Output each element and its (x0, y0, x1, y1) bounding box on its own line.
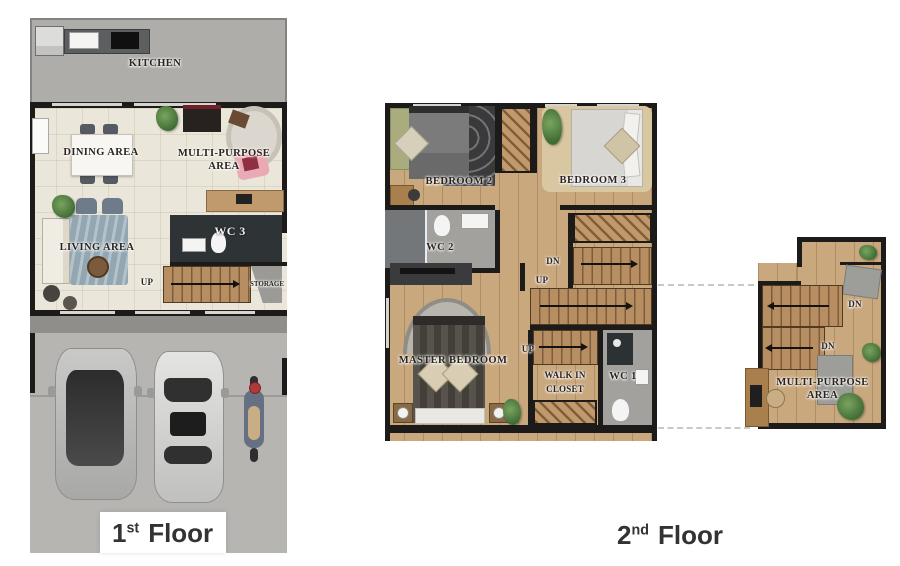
piano (183, 105, 221, 132)
plant-icon (503, 399, 521, 425)
walkin-label-line1: WALK IN (533, 370, 597, 381)
motorcycle-helmet (249, 382, 261, 394)
plant-icon (156, 106, 178, 131)
up-label: UP (515, 344, 541, 355)
kitchen-sink (69, 32, 99, 49)
connector-line (658, 284, 754, 286)
washer-door (613, 339, 621, 347)
caption-ordinal: st (126, 520, 139, 536)
stone-rug (842, 265, 882, 300)
toilet (434, 215, 450, 236)
stair-arrow-head (581, 343, 588, 351)
ottoman (63, 296, 77, 310)
plant-icon (859, 245, 877, 260)
stair-arrow-line (771, 347, 813, 349)
car-sunroof (170, 412, 206, 436)
wall-segment (30, 333, 35, 393)
plant-icon (542, 109, 562, 145)
shower (385, 210, 425, 268)
storage-label: STORAGE (247, 280, 287, 288)
staircase-down (573, 247, 652, 285)
dn-label: DN (540, 256, 566, 267)
first-floor-plan: KITCHEN DINING AREA MULTI-PURPOSE AREA (30, 18, 287, 553)
caption-word: Floor (148, 518, 213, 548)
stair-arrow-head (631, 260, 638, 268)
multi-purpose-area-label: MULTI-PURPOSE AREA (168, 148, 280, 173)
first-floor-caption: 1stFloor (112, 518, 213, 549)
ottoman (43, 285, 60, 302)
window (135, 311, 190, 314)
up-label: UP (134, 277, 160, 288)
stair-arrow-head (626, 302, 633, 310)
stair-arrow-line (171, 283, 233, 285)
car-glass-roof (66, 370, 124, 466)
washer (607, 333, 633, 365)
wc3-label: WC 3 (182, 224, 278, 238)
up-label: UP (529, 275, 555, 286)
caption-number: 2 (617, 520, 631, 550)
wall-segment (881, 237, 886, 427)
dining-area-label: DINING AREA (44, 147, 158, 160)
toilet (612, 399, 629, 421)
wc2-label: WC 2 (403, 242, 477, 255)
multi-purpose-line1: MULTI-PURPOSE (168, 148, 280, 161)
walkin-closet-shelves (533, 400, 597, 425)
porch-strip (30, 316, 287, 333)
floorplan-scene: KITCHEN DINING AREA MULTI-PURPOSE AREA (0, 0, 900, 566)
master-bedroom-label: MASTER BEDROOM (385, 355, 521, 368)
second-floor-plan: BEDROOM 2 BEDROOM 3 WC 2 DN UP (385, 103, 657, 441)
lamp (397, 407, 409, 419)
stair-arrow-line (540, 305, 628, 307)
stair-arrow-line (773, 305, 829, 307)
wall-segment (797, 237, 802, 267)
car-mirror (147, 388, 155, 398)
car-mirror (134, 386, 142, 397)
car-windshield (164, 378, 212, 402)
multi-purpose-line2: AREA (168, 161, 280, 174)
armchair (102, 198, 123, 214)
wall-segment (652, 103, 657, 441)
plant-icon (52, 195, 75, 218)
bathroom-vanity (461, 213, 489, 229)
shower-glass (425, 210, 427, 268)
dn-label: DN (813, 341, 843, 352)
multi-purpose-line1: MULTI-PURPOSE (770, 377, 875, 390)
window (205, 311, 255, 314)
window (60, 311, 115, 314)
wall-segment (495, 210, 500, 273)
monitor (750, 385, 762, 407)
wall-segment (797, 237, 885, 242)
caption-number: 1 (112, 518, 126, 548)
stair-arrow-line (539, 346, 583, 348)
mezzanine-plan: DN DN MULTI-PURPOSE AREA (745, 237, 888, 433)
mezzanine-multi-purpose-label: MULTI-PURPOSE AREA (770, 377, 875, 402)
stair-arrow-head (233, 280, 240, 288)
stair-arrow-line (581, 263, 633, 265)
laptop (236, 194, 252, 204)
window (52, 103, 122, 106)
tv-console (390, 263, 472, 285)
kitchen-label: KITCHEN (90, 58, 220, 71)
stair-arrow-head (767, 302, 774, 310)
stair-closet (573, 213, 652, 243)
motorcycle-seat (248, 406, 260, 440)
wall-segment (560, 205, 657, 210)
walkin-label-line2: CLOSET (533, 384, 597, 395)
desk-chair (408, 189, 420, 201)
bedroom3-label: BEDROOM 3 (535, 175, 651, 188)
connector-line (658, 427, 750, 429)
car-mirror (221, 388, 229, 398)
bed-footer (415, 408, 485, 424)
living-area-label: LIVING AREA (42, 242, 152, 255)
stove (111, 32, 139, 49)
bathroom-sink (182, 238, 206, 252)
caption-ordinal: nd (632, 522, 649, 538)
wall-segment (282, 108, 287, 233)
car-rear-window (164, 446, 212, 464)
second-floor-caption: 2ndFloor (585, 520, 755, 551)
multi-purpose-line2: AREA (770, 390, 875, 403)
stair-arrow-head (765, 344, 772, 352)
wall-segment (282, 358, 287, 396)
plant-icon (862, 343, 881, 362)
bedroom2-label: BEDROOM 2 (403, 176, 515, 189)
tv (400, 268, 455, 274)
hall-closet (500, 107, 532, 173)
caption-word: Floor (658, 520, 723, 550)
motorcycle-rear-wheel (250, 448, 258, 462)
window (386, 298, 389, 348)
wc1-label: WC 1 (597, 371, 649, 384)
car-mirror (48, 386, 56, 397)
wall-segment (758, 423, 886, 429)
armchair (76, 198, 97, 214)
wall-segment (385, 425, 657, 433)
refrigerator (35, 26, 64, 56)
wall-segment (532, 103, 537, 173)
wall-segment (520, 263, 525, 291)
coffee-table (87, 256, 109, 278)
dn-label: DN (841, 299, 869, 310)
